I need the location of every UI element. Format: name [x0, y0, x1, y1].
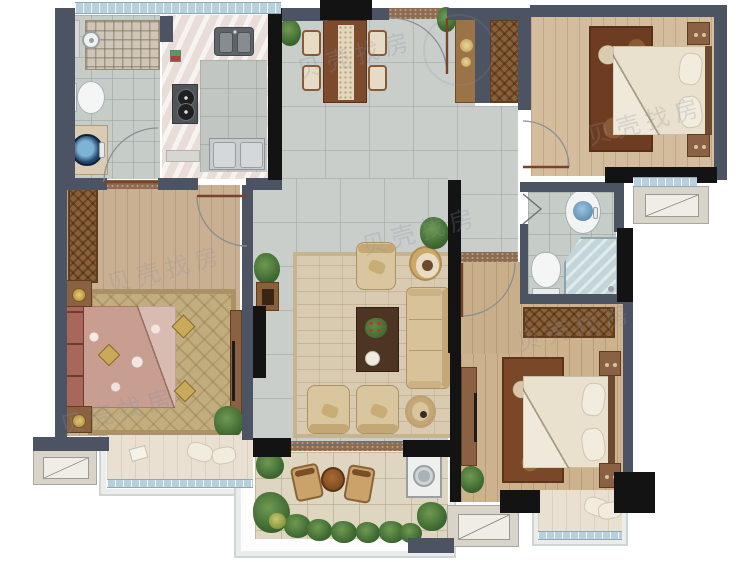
shear-balcony-left [253, 438, 291, 457]
achair-back [358, 424, 398, 433]
shear-kitchen-right [268, 8, 282, 180]
lamp [72, 288, 86, 302]
floor-plan: 贝壳找房贝壳找房贝壳找房贝壳找房贝壳找房贝壳找房 [0, 0, 750, 562]
ctray [365, 351, 380, 366]
nightstand-bedroom2-a [599, 351, 621, 376]
sofa-arm [408, 381, 442, 388]
knob [702, 33, 706, 37]
shear-living-master [253, 306, 266, 378]
light-switch [170, 50, 181, 62]
coffee-table [356, 307, 399, 372]
book [129, 445, 149, 462]
watermark-ring [423, 14, 495, 86]
wall-stub-bath-kitchen [160, 16, 173, 42]
ott-c [420, 411, 427, 418]
wall-bedroom1-left [518, 18, 531, 110]
washing-machine [406, 455, 442, 498]
wall-right-bedroom1 [714, 14, 727, 180]
faucet [233, 30, 237, 34]
tv [232, 341, 235, 401]
nightstand-lamp-master-a [64, 280, 92, 307]
ottoman [405, 395, 436, 428]
tray-table [409, 246, 442, 281]
bay-window-seat-master [107, 435, 253, 480]
sofa-cush [409, 296, 442, 381]
wardrobe-bedroom1 [489, 19, 520, 103]
burner [177, 103, 195, 121]
nightstand-bedroom1-b [687, 134, 710, 157]
balcony-plant-10 [417, 502, 447, 531]
wardrobe-master [68, 188, 98, 283]
shear-bedroom2-left [450, 350, 461, 502]
ac-platform-bottom-left [33, 450, 97, 485]
cflower [365, 318, 387, 338]
balcony-plant-7 [356, 522, 380, 543]
wall-bath-bottom-b [158, 178, 198, 190]
kitchen-sink [214, 27, 254, 56]
armchair-bottom-1 [307, 385, 350, 434]
headboard [608, 376, 615, 468]
shead-dot [608, 286, 614, 292]
apillow [367, 259, 386, 276]
sink-in [573, 201, 593, 221]
bathroom1-threshold [105, 180, 158, 189]
console-i [262, 289, 274, 305]
shear-bedroom2-bottom-a [500, 490, 540, 513]
apillow [369, 402, 388, 419]
pillow [185, 439, 215, 464]
plant-living-left [254, 253, 280, 284]
shear-bedroom2-bottom-b [614, 472, 655, 513]
armchair-bottom-2 [356, 385, 399, 434]
bed-bedroom2 [523, 376, 615, 468]
knob [694, 33, 698, 37]
fdoor [240, 142, 263, 168]
achair-back [309, 424, 349, 433]
nightstand-bedroom1-a [687, 22, 710, 45]
plant-dining [279, 19, 301, 46]
sink-bathroom2 [565, 189, 601, 234]
ac-in [43, 457, 89, 479]
pillow [211, 445, 238, 466]
cdots [367, 320, 384, 335]
apillow [320, 402, 339, 419]
wall-bathroom2-right [614, 182, 624, 232]
bchair-back [352, 469, 372, 478]
knob [613, 363, 617, 367]
knob [702, 145, 706, 149]
wall-top-entry [372, 8, 389, 20]
knob [605, 363, 609, 367]
balcony-door-track [290, 441, 403, 451]
shear-bathroom2-right [617, 228, 633, 302]
tv [474, 393, 477, 443]
wall-bathroom2-top [520, 182, 620, 192]
shear-top-entry [320, 0, 372, 20]
ac-in [458, 514, 510, 540]
shead-dot [89, 38, 94, 43]
window-bay-master [107, 479, 253, 488]
stove [172, 84, 198, 124]
wc-bowl [531, 252, 561, 288]
kitchen-counter [166, 150, 200, 162]
balcony-plant-4 [269, 513, 286, 529]
knob [605, 475, 609, 479]
window-bedroom1-south [633, 177, 697, 187]
wall-top-bedroom1 [530, 5, 727, 17]
window-top [75, 2, 281, 14]
wall-bathroom2-left [520, 224, 528, 302]
plant-master [214, 406, 244, 438]
dining-chair-4 [368, 65, 387, 91]
headboard [705, 46, 712, 135]
tv-stand-bedroom2 [461, 367, 477, 466]
drum2 [418, 470, 430, 482]
balcony-table [321, 467, 345, 492]
window-bay-bedroom2 [538, 531, 622, 540]
toilet-bathroom2 [529, 252, 563, 298]
wc-bowl [77, 81, 105, 114]
balcony-plant-6 [331, 521, 357, 543]
wall-balcony-post [408, 538, 454, 553]
bay-window-seat-bedroom2 [538, 490, 622, 532]
floor-inner-hall [460, 262, 520, 354]
fridge [209, 138, 265, 170]
fdoor [213, 142, 236, 168]
bed-fold [523, 376, 571, 468]
wall-master-right [242, 185, 253, 440]
ac-platform-top-right [633, 186, 709, 224]
ac-in [645, 194, 700, 218]
faucet [593, 207, 598, 219]
plant-bedroom2 [460, 466, 484, 493]
headboard-m [66, 306, 84, 408]
kbasin [237, 32, 251, 53]
sofa-arm [408, 289, 442, 296]
inner-hall-threshold [460, 252, 518, 262]
wall-left-top [55, 8, 75, 189]
knob [694, 145, 698, 149]
balcony-plant-5 [307, 519, 332, 541]
shear-balcony-right [403, 440, 451, 457]
shower-head [82, 31, 100, 49]
bchair-back [294, 467, 315, 477]
sofa [406, 287, 450, 389]
faucet [99, 142, 105, 158]
kbasin [219, 32, 233, 53]
